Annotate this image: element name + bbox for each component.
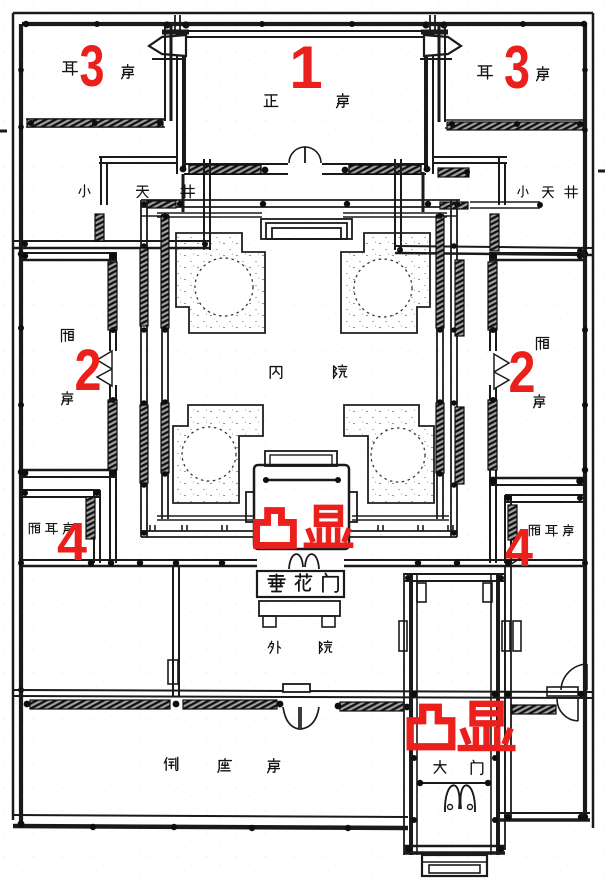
- svg-text:4: 4: [57, 512, 87, 572]
- svg-text:2: 2: [509, 340, 536, 405]
- svg-text:2: 2: [75, 338, 102, 403]
- svg-text:3: 3: [504, 34, 530, 101]
- svg-text:4: 4: [505, 518, 533, 578]
- svg-text:1: 1: [289, 34, 322, 101]
- svg-text:3: 3: [80, 34, 105, 99]
